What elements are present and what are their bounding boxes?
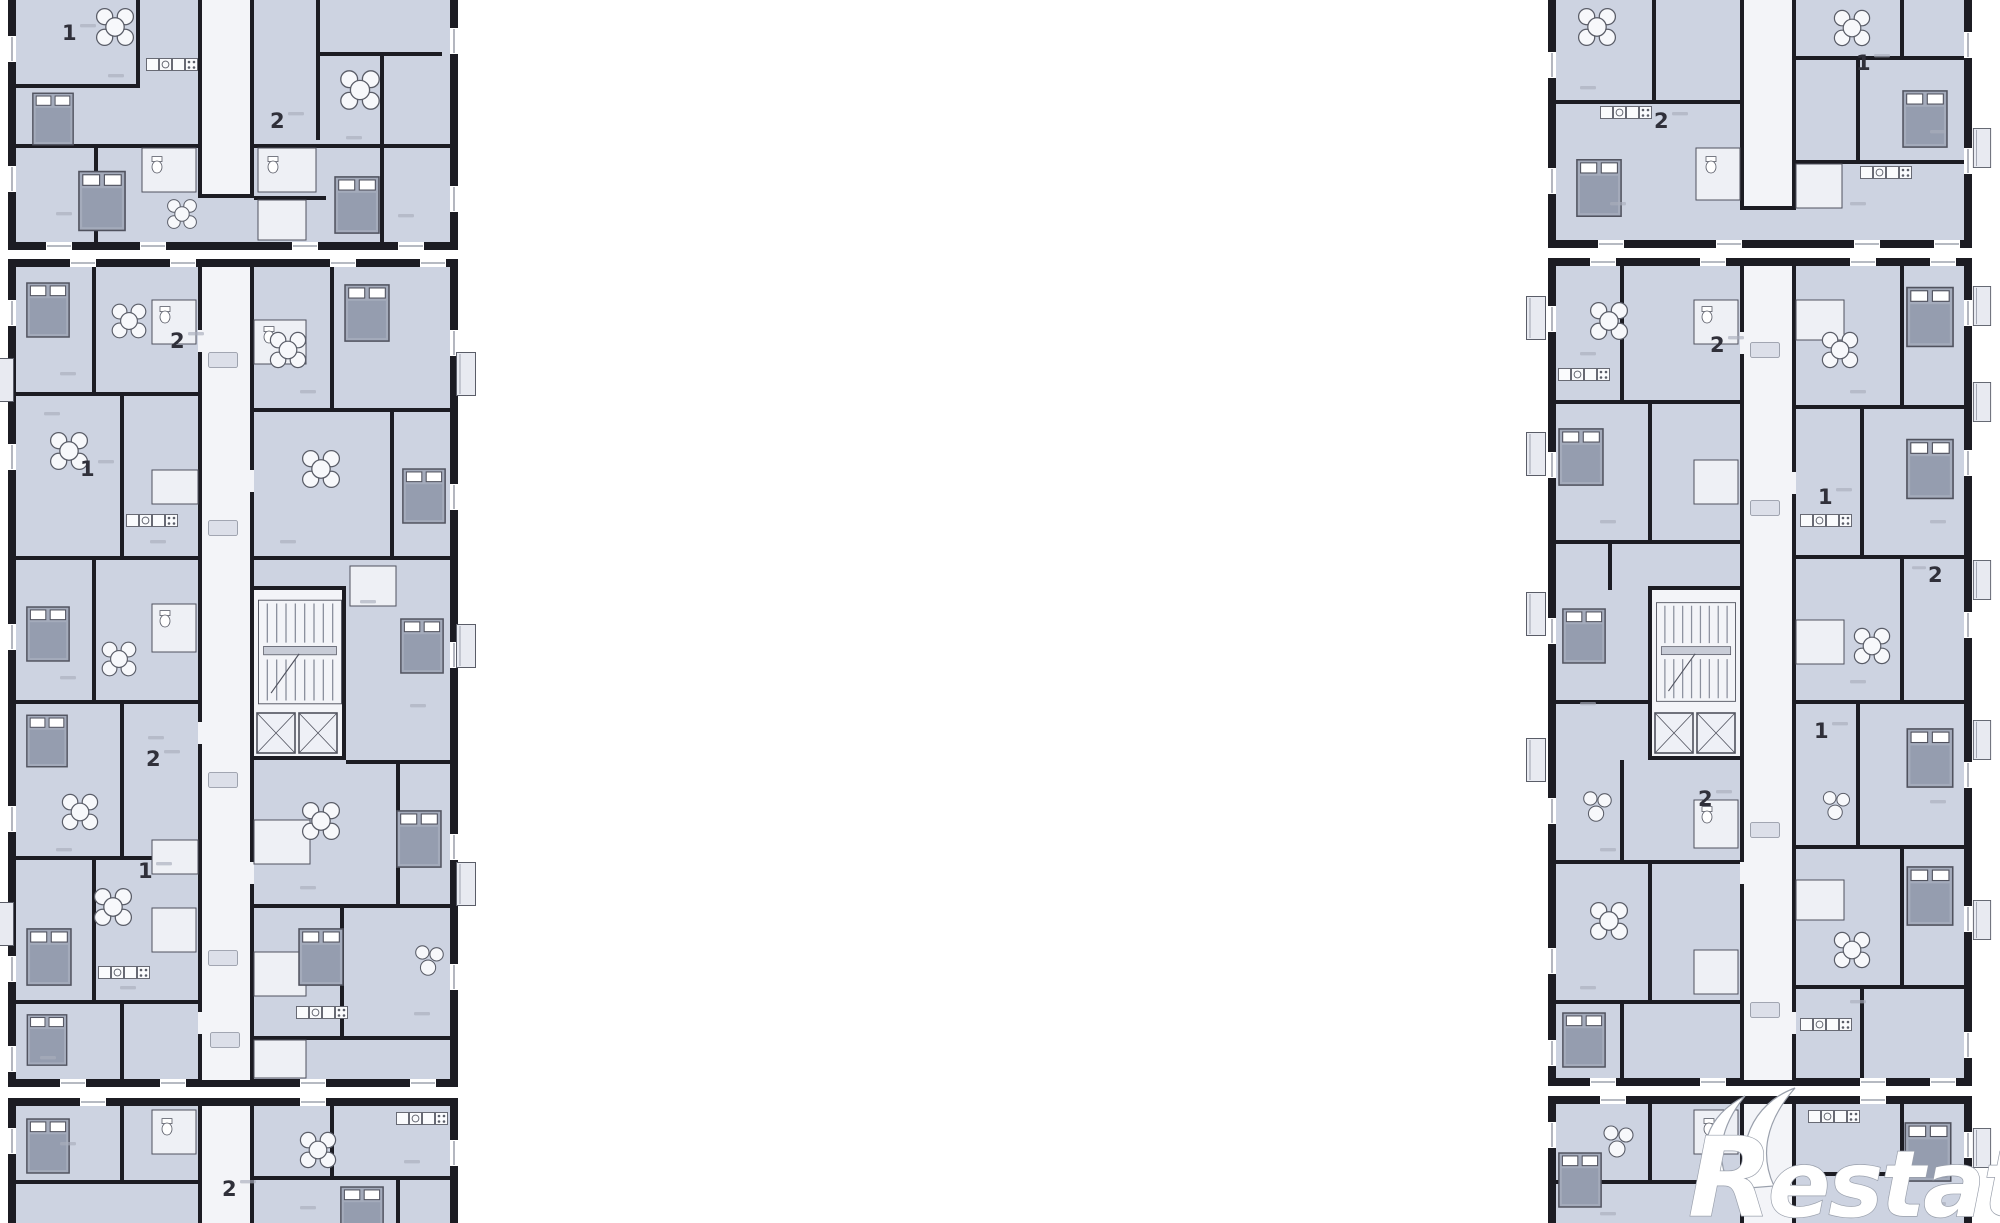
- svg-text:2: 2: [270, 109, 285, 133]
- logo-wordmark: estate: [1768, 1131, 2000, 1223]
- svg-text:2: 2: [1928, 563, 1943, 587]
- bed-icon: [27, 929, 71, 985]
- bed-icon: [79, 172, 125, 231]
- balcony-icon: [1973, 900, 1990, 939]
- bathroom: [258, 148, 316, 192]
- bed-icon: [345, 285, 389, 341]
- stairs-icon: [1656, 603, 1735, 702]
- corridor: [1744, 266, 1792, 1080]
- left-tower: 1 2: [0, 0, 476, 1223]
- bed-icon: [1903, 91, 1947, 147]
- bed-icon: [299, 929, 343, 985]
- right-tower-plate-top: 1 2: [1548, 0, 1991, 248]
- balcony-icon: [1527, 433, 1546, 476]
- logo-initial: R: [1688, 1114, 1773, 1223]
- bed-icon: [403, 469, 445, 523]
- toilet-icon: [268, 157, 278, 173]
- balcony-icon: [1527, 297, 1546, 340]
- svg-text:1: 1: [138, 859, 153, 883]
- balcony-icon: [457, 863, 476, 906]
- bathroom: [258, 200, 306, 240]
- balcony-icon: [0, 359, 14, 402]
- balcony-icon: [0, 903, 14, 946]
- bed-icon: [27, 715, 67, 767]
- bathroom: [152, 1110, 196, 1154]
- right-tower: 1 2: [1527, 0, 1991, 1223]
- bed-icon: [1907, 867, 1952, 925]
- toilet-icon: [160, 611, 170, 627]
- toilet-icon: [1702, 307, 1712, 323]
- floor-plan-page: 1 2: [0, 0, 2000, 1223]
- balcony-icon: [1973, 720, 1990, 759]
- corridor: [1744, 0, 1792, 206]
- toilet-icon: [160, 307, 170, 323]
- right-tower-plate-middle: 2 1 2 2 1: [1527, 258, 1991, 1086]
- balcony-icon: [1973, 382, 1990, 421]
- bed-icon: [397, 811, 441, 867]
- svg-text:2: 2: [1710, 333, 1725, 357]
- elevator-icon: [1697, 713, 1735, 753]
- balcony-icon: [1973, 560, 1990, 599]
- elevator-icon: [257, 713, 295, 753]
- balcony-icon: [1527, 739, 1546, 782]
- svg-text:1: 1: [1856, 51, 1871, 75]
- stairs-icon: [258, 600, 341, 704]
- balcony-icon: [457, 353, 476, 396]
- corridor: [202, 0, 250, 194]
- toilet-icon: [162, 1119, 172, 1135]
- floor-plan-svg: 1 2: [0, 0, 2000, 1223]
- svg-text:2: 2: [222, 1177, 237, 1201]
- bed-icon: [1907, 729, 1952, 787]
- bed-icon: [27, 283, 69, 337]
- corridor: [202, 1106, 250, 1223]
- toilet-icon: [152, 157, 162, 173]
- balcony-icon: [1973, 128, 1990, 167]
- svg-text:1: 1: [62, 21, 77, 45]
- svg-text:2: 2: [170, 329, 185, 353]
- left-tower-plate-top: 1 2: [8, 0, 458, 250]
- bed-icon: [1907, 440, 1953, 499]
- elevator-icon: [1655, 713, 1693, 753]
- bed-icon: [27, 607, 69, 661]
- left-tower-plate-bottom: 2: [8, 1098, 458, 1223]
- bed-icon: [1577, 160, 1621, 216]
- bed-icon: [401, 619, 443, 673]
- bed-icon: [1559, 429, 1603, 485]
- balcony-icon: [1973, 286, 1990, 325]
- svg-text:1: 1: [1818, 485, 1833, 509]
- bed-icon: [27, 1119, 69, 1173]
- balcony-icon: [457, 625, 476, 668]
- svg-text:1: 1: [1814, 719, 1829, 743]
- svg-text:2: 2: [146, 747, 161, 771]
- bathroom: [1796, 164, 1842, 208]
- bed-icon: [341, 1187, 383, 1223]
- bed-icon: [1563, 609, 1605, 663]
- balcony-icon: [1527, 593, 1546, 636]
- svg-text:1: 1: [80, 457, 95, 481]
- bed-icon: [1559, 1153, 1601, 1207]
- svg-text:2: 2: [1654, 109, 1669, 133]
- bed-icon: [1563, 1013, 1605, 1067]
- bathroom: [1696, 148, 1740, 200]
- bed-icon: [335, 177, 379, 233]
- toilet-icon: [1706, 157, 1716, 173]
- bed-icon: [33, 93, 73, 145]
- elevator-icon: [299, 713, 337, 753]
- bathroom: [142, 148, 196, 192]
- left-tower-plate-middle: 2 1 2 1: [0, 259, 476, 1087]
- svg-text:2: 2: [1698, 787, 1713, 811]
- bed-icon: [1907, 288, 1953, 347]
